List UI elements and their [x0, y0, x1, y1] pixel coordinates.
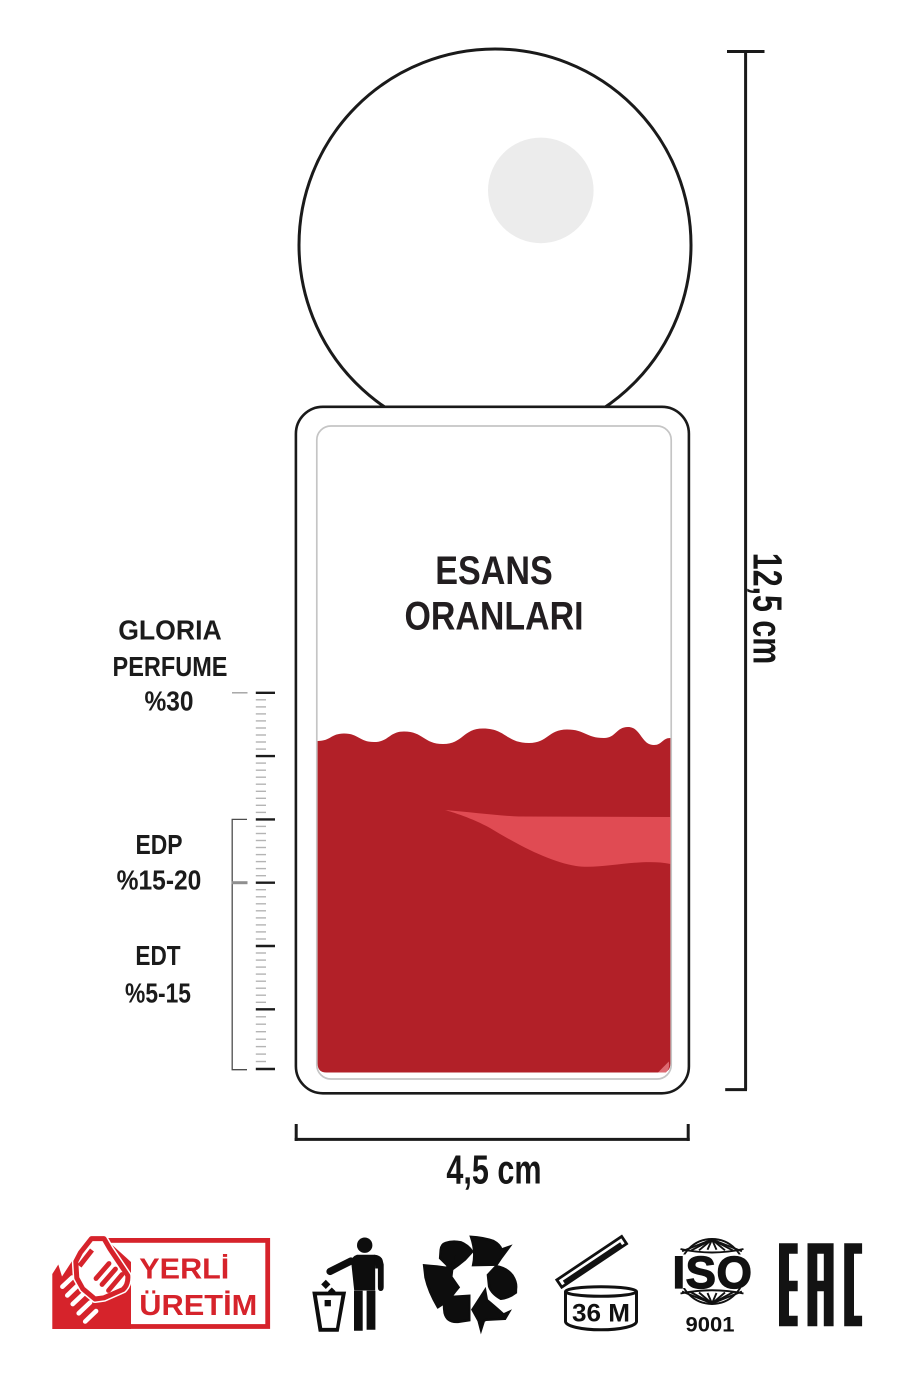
- svg-text:%30: %30: [145, 686, 194, 717]
- svg-text:PERFUME: PERFUME: [113, 651, 228, 682]
- svg-text:12,5 cm: 12,5 cm: [745, 553, 791, 664]
- svg-text:%15-20: %15-20: [117, 865, 202, 896]
- svg-text:GLORIA: GLORIA: [118, 615, 222, 646]
- svg-text:EDP: EDP: [135, 829, 182, 860]
- svg-text:9001: 9001: [686, 1312, 735, 1336]
- svg-text:36 M: 36 M: [572, 1300, 630, 1328]
- svg-text:EDT: EDT: [135, 940, 180, 971]
- svg-text:ESANS: ESANS: [435, 549, 553, 593]
- svg-text:ÜRETİM: ÜRETİM: [139, 1289, 257, 1322]
- svg-text:ORANLARI: ORANLARI: [405, 595, 584, 639]
- svg-text:%5-15: %5-15: [125, 978, 191, 1009]
- svg-text:4,5 cm: 4,5 cm: [446, 1146, 541, 1192]
- svg-text:YERLİ: YERLİ: [139, 1254, 229, 1286]
- svg-text:ISO: ISO: [672, 1247, 752, 1298]
